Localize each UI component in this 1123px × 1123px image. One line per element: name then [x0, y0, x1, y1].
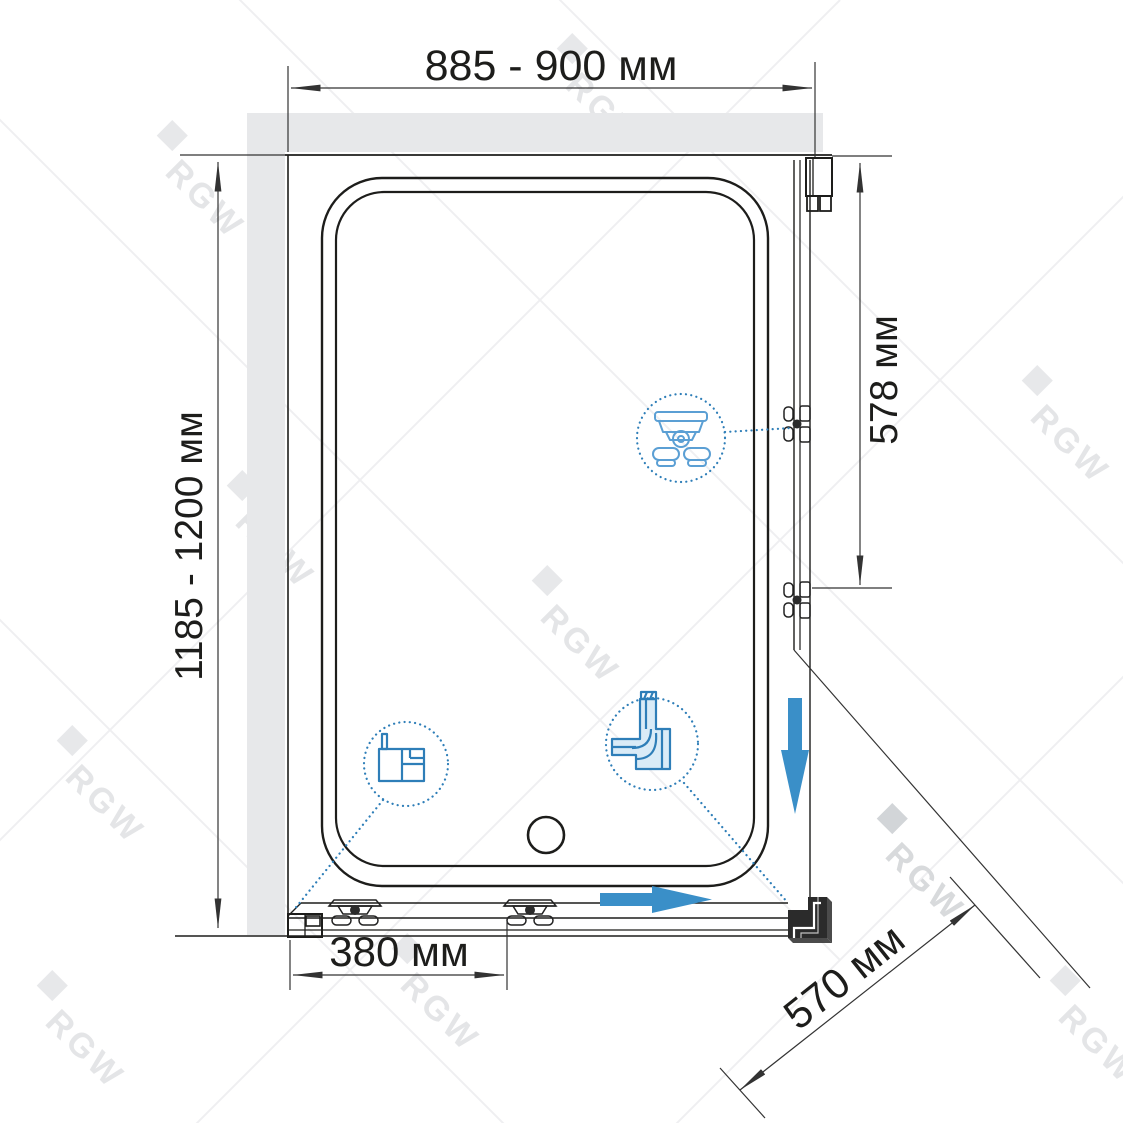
dimension-right: 578 мм [812, 156, 906, 588]
tray-inner-outline [336, 192, 754, 866]
wall-bands [247, 113, 823, 935]
dimension-top-label: 885 - 900 мм [425, 42, 678, 90]
enclosure-frame [285, 155, 832, 914]
shower-enclosure-drawing: RGW RGW RGW RGW RGW RGW RGW RGW RGW RGW [0, 0, 1123, 1123]
dimension-bottom-label: 380 мм [329, 928, 469, 975]
svg-text:RGW: RGW [393, 966, 487, 1060]
rgw-logo-watermark: RGW [36, 725, 163, 852]
wall-top-band [247, 113, 823, 152]
detail-callout-wall-profile [293, 722, 448, 911]
dimension-left-label: 1185 - 1200 мм [168, 411, 211, 681]
rgw-logo-watermark: RGW [1029, 965, 1123, 1092]
rgw-logo-watermark: RGW [16, 970, 143, 1097]
svg-text:RGW: RGW [533, 598, 627, 692]
svg-text:RGW: RGW [878, 836, 972, 930]
detail-callout-corner-connector [606, 692, 788, 903]
slide-direction-arrows [600, 698, 809, 913]
roller-carriage-icon [653, 412, 710, 466]
svg-text:RGW: RGW [58, 758, 152, 852]
svg-text:RGW: RGW [158, 153, 252, 247]
callout-leader [293, 800, 383, 911]
tray-outer-outline [322, 178, 768, 886]
svg-text:RGW: RGW [38, 1003, 132, 1097]
callout-leader [725, 428, 792, 432]
rgw-logo-watermark: RGW [136, 120, 263, 247]
dimension-diagonal: 570 мм [720, 877, 1040, 1118]
rgw-logo-watermark: RGW [511, 565, 638, 692]
arrow-right-icon [600, 886, 712, 913]
drain-icon [528, 817, 564, 853]
wall-left-band [247, 113, 285, 935]
right-roller-top [784, 406, 810, 442]
corner-connector-icon [612, 692, 670, 769]
svg-text:RGW: RGW [1051, 998, 1123, 1092]
bottom-right-corner-bracket [788, 897, 832, 943]
right-roller-bottom [784, 582, 810, 618]
callout-circle [637, 394, 725, 482]
drawing-svg: RGW RGW RGW RGW RGW RGW RGW RGW RGW RGW [0, 0, 1123, 1123]
wall-profile-section-icon [379, 734, 424, 781]
dimension-right-label: 578 мм [863, 315, 906, 445]
arrow-down-icon [781, 698, 809, 814]
rgw-logo-watermark: RGW [856, 803, 983, 930]
rgw-logo-watermark: RGW [1001, 365, 1123, 492]
